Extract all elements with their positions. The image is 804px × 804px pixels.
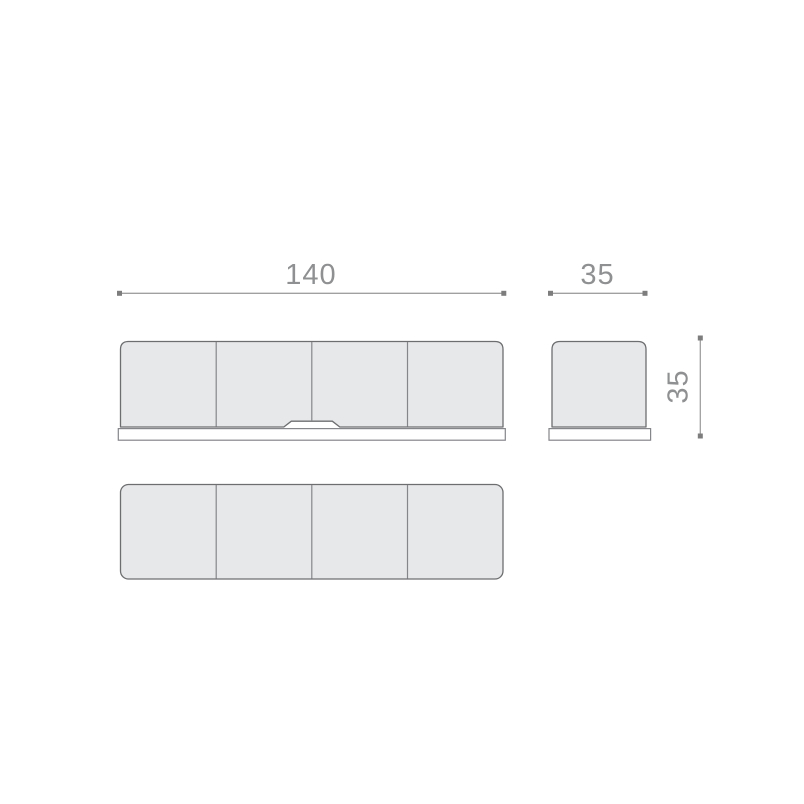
front-view [118, 342, 505, 441]
front-view-base [118, 429, 505, 441]
height-dimension: 35 [663, 336, 703, 439]
depth-dimension-start-marker [548, 291, 553, 296]
width-dimension-start-marker [117, 291, 122, 296]
height-dimension-start-marker [698, 336, 703, 341]
width-dimension: 140 [117, 259, 506, 296]
depth-dimension-label: 35 [580, 259, 614, 291]
height-dimension-end-marker [698, 434, 703, 439]
width-dimension-label: 140 [285, 259, 336, 291]
side-view-body [552, 342, 646, 428]
dimension-drawing: 140 35 35 [0, 0, 804, 804]
top-view [121, 485, 504, 580]
width-dimension-end-marker [501, 291, 506, 296]
depth-dimension-end-marker [643, 291, 648, 296]
side-view-base [549, 429, 651, 441]
height-dimension-label: 35 [663, 369, 695, 403]
depth-dimension: 35 [548, 259, 648, 296]
side-view [549, 342, 651, 441]
